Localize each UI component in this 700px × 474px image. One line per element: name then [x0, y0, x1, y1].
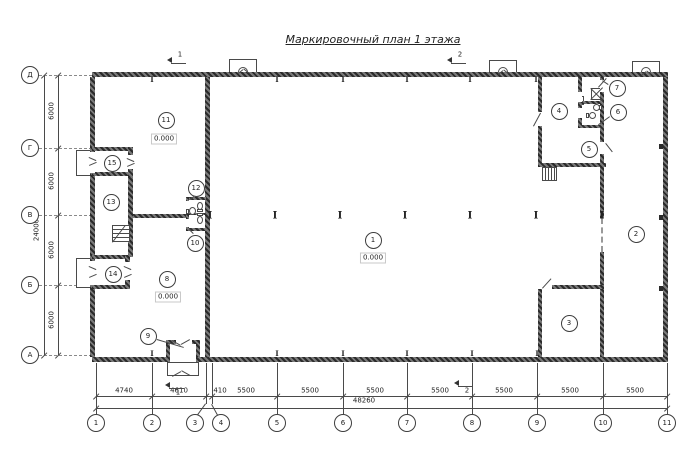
axis-ext: [277, 363, 278, 414]
wall: [128, 177, 133, 257]
room-bubble-5: 5: [581, 141, 598, 158]
axis-line-Г: [39, 148, 92, 149]
thin-line: [542, 278, 552, 289]
column-icon: I: [403, 212, 408, 222]
toilet-icon: [589, 112, 596, 119]
column-icon: I: [468, 76, 471, 83]
elevation-label: 0.000: [151, 134, 177, 145]
axis-ext: [472, 363, 473, 414]
axis-bubble-11: 11: [658, 414, 676, 432]
column-icon: I: [405, 76, 408, 83]
dim-label: 5500: [237, 388, 255, 395]
dim-label: 5500: [431, 388, 449, 395]
room-bubble-10: 10: [187, 235, 204, 252]
axis-bubble-7: 7: [398, 414, 416, 432]
toilet-icon: [197, 216, 203, 224]
axis-bubble-В: В: [21, 206, 39, 224]
axis-bubble-1: 1: [87, 414, 105, 432]
dim-label: 6000: [49, 311, 56, 329]
column-icon: I: [405, 350, 408, 357]
axis-line-В: [39, 215, 92, 216]
dim-line-bottom-1: [96, 396, 667, 397]
wall: [578, 125, 604, 128]
room-bubble-15: 15: [104, 155, 121, 172]
axis-ext: [537, 363, 538, 414]
wall-opening: [578, 92, 582, 102]
toilet-tank: [197, 209, 203, 212]
wall-opening: [578, 108, 582, 118]
column-icon: I: [534, 212, 539, 222]
dim-label: 4740: [115, 388, 133, 395]
dim-label: 6000: [49, 102, 56, 120]
dim-label: 5500: [366, 388, 384, 395]
room-bubble-9: 9: [140, 328, 157, 345]
room-bubble-12: 12: [188, 180, 205, 197]
section-line: [171, 63, 186, 64]
section-label: 2: [458, 52, 462, 59]
toilet-tank: [586, 113, 589, 118]
axis-bubble-2: 2: [143, 414, 161, 432]
dim-label: 5500: [301, 388, 319, 395]
column-icon: I: [534, 76, 537, 83]
axis-line-Д: [39, 75, 92, 76]
axis-bubble-5: 5: [268, 414, 286, 432]
column-icon: I: [341, 76, 344, 83]
dim-label: 5500: [626, 388, 644, 395]
column-icon: I: [150, 350, 153, 357]
axis-bubble-9: 9: [528, 414, 546, 432]
section-label: 2: [465, 388, 469, 395]
axis-bubble-Д: Д: [21, 66, 39, 84]
room-bubble-14: 14: [105, 266, 122, 283]
outline-structure: [167, 362, 199, 376]
wall-opening: [90, 261, 95, 285]
dim-line-bottom-2: [96, 408, 667, 409]
wall: [92, 147, 133, 151]
room-bubble-13: 13: [103, 194, 120, 211]
column-icon: I: [600, 212, 605, 222]
column-tick: [659, 144, 663, 149]
column-icon: I: [275, 350, 278, 357]
dim-label: 410: [213, 388, 226, 395]
room-bubble-7: 7: [609, 80, 626, 97]
elevation-label: 0.000: [360, 253, 386, 264]
room-bubble-3: 3: [561, 315, 578, 332]
room-bubble-2: 2: [628, 226, 645, 243]
axis-ext: [407, 363, 408, 414]
dim-label-total-bottom: 48260: [353, 398, 375, 405]
toilet-icon: [189, 207, 196, 215]
dim-line-left-2: [44, 75, 45, 355]
axis-ext: [152, 363, 153, 414]
axis-line-А: [39, 355, 92, 356]
room-bubble-8: 8: [159, 271, 176, 288]
wall-opening: [128, 155, 133, 169]
axis-bubble-10: 10: [594, 414, 612, 432]
axis-bubble-4: 4: [212, 414, 230, 432]
stairs: [542, 167, 557, 181]
column-icon: I: [338, 212, 343, 222]
column-icon: I: [470, 350, 473, 357]
thin-line: [197, 403, 206, 415]
column-icon: I: [535, 350, 538, 357]
column-tick: [659, 286, 663, 291]
axis-ext: [206, 363, 207, 404]
column-icon: I: [208, 212, 213, 222]
wall: [600, 252, 604, 357]
elevation-label: 0.000: [155, 292, 181, 303]
axis-ext: [212, 363, 213, 404]
wall: [538, 289, 542, 357]
section-label: 1: [178, 52, 182, 59]
axis-bubble-6: 6: [334, 414, 352, 432]
column-icon: I: [468, 212, 473, 222]
dim-label: 6000: [49, 172, 56, 190]
floor-plan-canvas: Маркировочный план 1 этажа 6000600060006…: [0, 0, 700, 474]
wall: [130, 214, 188, 218]
room-bubble-1: 1: [365, 232, 382, 249]
column-tick: [659, 215, 663, 220]
room-bubble-11: 11: [158, 112, 175, 129]
axis-bubble-Г: Г: [21, 139, 39, 157]
room-bubble-6: 6: [610, 104, 627, 121]
wall: [92, 172, 133, 176]
axis-ext: [343, 363, 344, 414]
toilet-tank: [599, 105, 602, 110]
toilet-tank: [197, 213, 203, 216]
room-bubble-4: 4: [551, 103, 568, 120]
axis-bubble-Б: Б: [21, 276, 39, 294]
dim-label: 5500: [561, 388, 579, 395]
thin-line: [605, 143, 613, 153]
column-icon: I: [273, 212, 278, 222]
axis-bubble-3: 3: [186, 414, 204, 432]
axis-bubble-8: 8: [463, 414, 481, 432]
axis-bubble-А: А: [21, 346, 39, 364]
axis-ext: [603, 363, 604, 414]
toilet-tank: [186, 209, 189, 214]
wall: [582, 101, 602, 104]
section-label: 1: [176, 390, 180, 397]
wall: [90, 77, 95, 357]
dim-label: 5500: [495, 388, 513, 395]
wall-opening: [600, 142, 604, 154]
section-line: [451, 63, 466, 64]
wall: [552, 285, 604, 289]
wall: [663, 77, 668, 357]
column-icon: I: [150, 76, 153, 83]
dim-label: 6000: [49, 241, 56, 259]
drawing-title: Маркировочный план 1 этажа: [286, 33, 461, 46]
wall-opening: [186, 219, 189, 227]
dashed-partition: [601, 218, 603, 252]
column-icon: I: [341, 350, 344, 357]
column-icon: I: [275, 76, 278, 83]
wall-opening: [170, 357, 196, 362]
